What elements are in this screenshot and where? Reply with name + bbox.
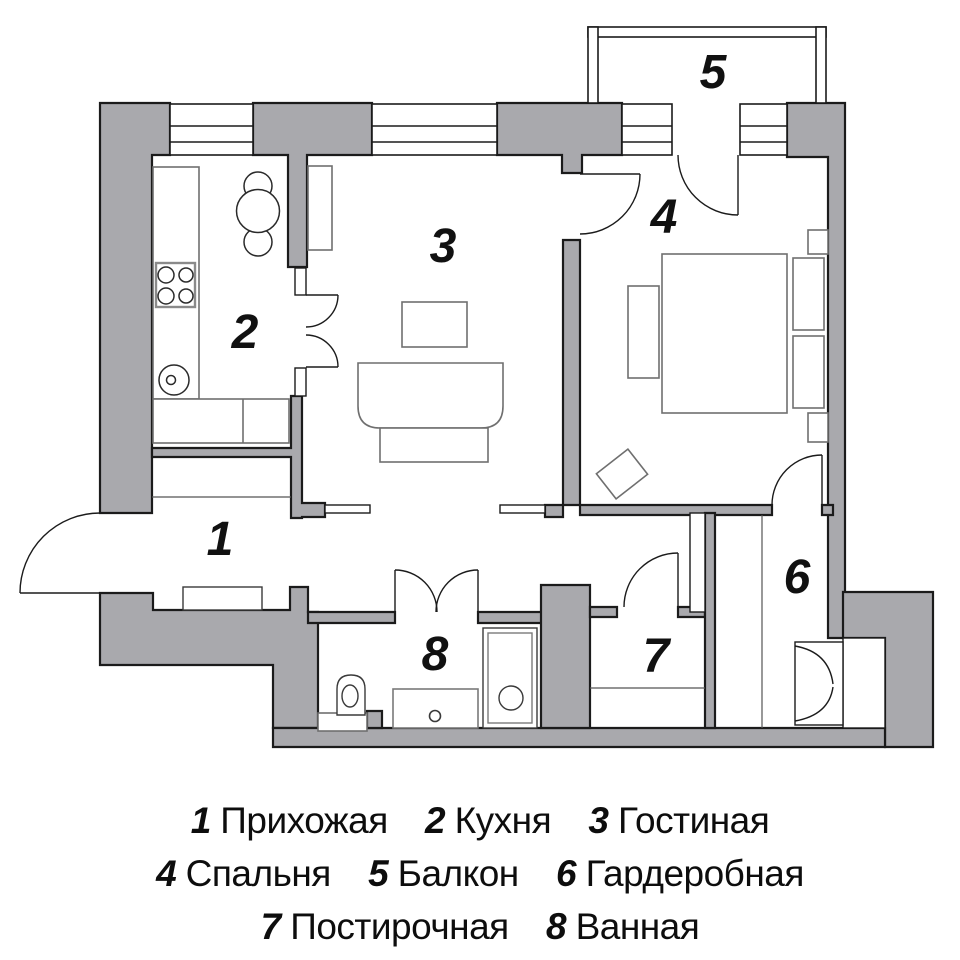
kitchen-table [237,190,280,233]
coffee-table [402,302,467,347]
room-label-bath: 8 [422,628,449,681]
wall-living-bedroom [563,240,580,505]
shelf-unit [308,166,332,250]
wall-bedroom-bottom [580,505,772,515]
sofa-bench [380,428,488,462]
bed [662,254,787,413]
wardrobe-door [772,455,822,505]
window-kitchen [170,104,253,155]
pillow [793,336,824,408]
room-label-living: 3 [430,220,457,273]
legend-line-2: 4Спальня 5Балкон 6Гардеробная [0,847,960,900]
wall-bath-top-right [478,612,543,623]
legend-number: 1 [191,800,212,841]
wall-bath-top-left [308,612,395,623]
laundry-door [624,553,678,607]
legend-number: 6 [556,853,577,894]
sofa [358,363,503,428]
legend-line-3: 7Постирочная 8Ванная [0,900,960,953]
shaft-niche [690,513,705,612]
window-bedroom-left [622,104,672,155]
floor-plan-page: 1 2 3 4 5 6 7 8 1Прихожая 2Кухня 3Гостин… [0,0,960,960]
wall-tab-wardrobe-door [822,505,833,515]
kitchen-furniture [153,167,289,443]
kitchen-sink-icon [159,365,189,395]
room-label-wardrobe: 6 [784,551,811,604]
window-bedroom-right [740,104,787,155]
vanity-unit [393,689,478,728]
legend-number: 3 [588,800,609,841]
legend-line-1: 1Прихожая 2Кухня 3Гостиная [0,794,960,847]
kitchen-counter-bottom [153,399,289,443]
legend: 1Прихожая 2Кухня 3Гостиная 4Спальня 5Бал… [0,794,960,953]
room-label-bedroom: 4 [650,191,678,244]
nightstand [808,230,828,254]
wall-bath-plumbing-tab [367,711,382,728]
legend-number: 4 [156,853,177,894]
entrance-door [20,513,100,593]
balcony-door [678,155,738,215]
legend-room-name: Прихожая [220,800,387,841]
toilet-icon [337,675,365,715]
room-label-laundry: 7 [643,630,672,683]
balcony-rail-left [588,27,598,103]
balcony-rail-top [588,27,826,37]
wall-top-pillar-living [497,103,622,173]
dresser [628,286,659,378]
room-label-kitchen: 2 [231,306,259,359]
legend-number: 2 [425,800,446,841]
legend-room-name: Спальня [186,853,331,894]
hallway-cabinet [183,587,262,610]
pillow [793,258,824,330]
balcony-rail-right [816,27,826,103]
room-label-hallway: 1 [207,513,234,566]
legend-room-name: Гостиная [618,800,769,841]
bedroom-door [580,174,640,234]
living-sliding-doors [325,505,545,513]
legend-room-name: Балкон [398,853,519,894]
wall-laundry-top-left [590,607,617,617]
wall-wardrobe-left [705,513,715,728]
legend-room-name: Постирочная [290,906,508,947]
legend-number: 7 [261,906,282,947]
closet-bifold-door [795,638,885,728]
legend-room-name: Кухня [455,800,552,841]
wall-bath-right [541,585,590,728]
window-living [372,104,497,155]
wall-slide-foot [545,505,563,517]
legend-number: 8 [546,906,567,947]
bathroom-double-door [395,570,478,612]
legend-room-name: Ванная [576,906,700,947]
bedroom-chair [596,449,647,499]
kitchen-table-chairs [237,172,280,256]
shower-tray [483,628,537,728]
bedroom-furniture [596,230,828,499]
legend-number: 5 [368,853,389,894]
legend-room-name: Гардеробная [586,853,804,894]
room-label-balcony: 5 [700,46,728,99]
living-furniture [308,166,503,462]
kitchen-swing-door [295,268,338,396]
nightstand [808,413,828,442]
